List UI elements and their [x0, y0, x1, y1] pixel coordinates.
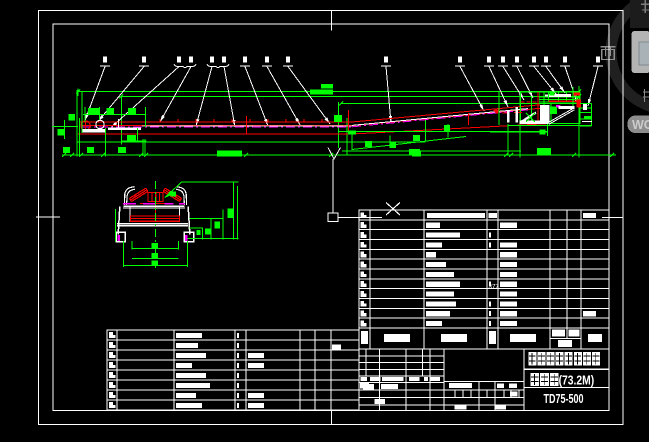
svg-text:WC: WC: [632, 118, 649, 132]
svg-text:TD75-500: TD75-500: [544, 392, 584, 406]
svg-text:(73.2M): (73.2M): [559, 373, 595, 388]
svg-text:377: 377: [489, 284, 500, 291]
